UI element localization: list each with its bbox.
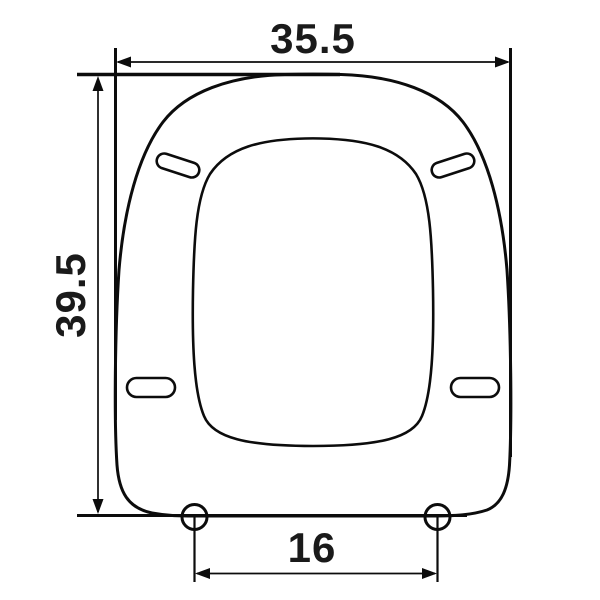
- arrowhead-depth-top: [93, 76, 104, 91]
- arrowhead-hinge-left: [195, 568, 210, 579]
- dimension-label-width: 35.5: [270, 15, 356, 62]
- arrowhead-depth-bottom: [93, 499, 104, 514]
- seat-inner-ring: [193, 138, 433, 446]
- toilet-seat-diagram: 35.5 39.5 16: [0, 0, 600, 600]
- bumper-slot-top-left: [155, 152, 201, 180]
- technical-drawing-canvas: 35.5 39.5 16: [0, 0, 600, 600]
- bumper-slot-bottom-right: [451, 378, 499, 397]
- bumper-slot-top-right: [430, 152, 476, 180]
- dimension-label-depth: 39.5: [47, 252, 94, 338]
- arrowhead-hinge-right: [422, 568, 437, 579]
- arrowhead-width-right: [495, 57, 510, 68]
- dimension-label-hinge-spacing: 16: [288, 524, 337, 571]
- arrowhead-width-left: [116, 57, 131, 68]
- seat-outer-outline: [115, 74, 511, 516]
- bumper-slot-bottom-left: [127, 378, 175, 397]
